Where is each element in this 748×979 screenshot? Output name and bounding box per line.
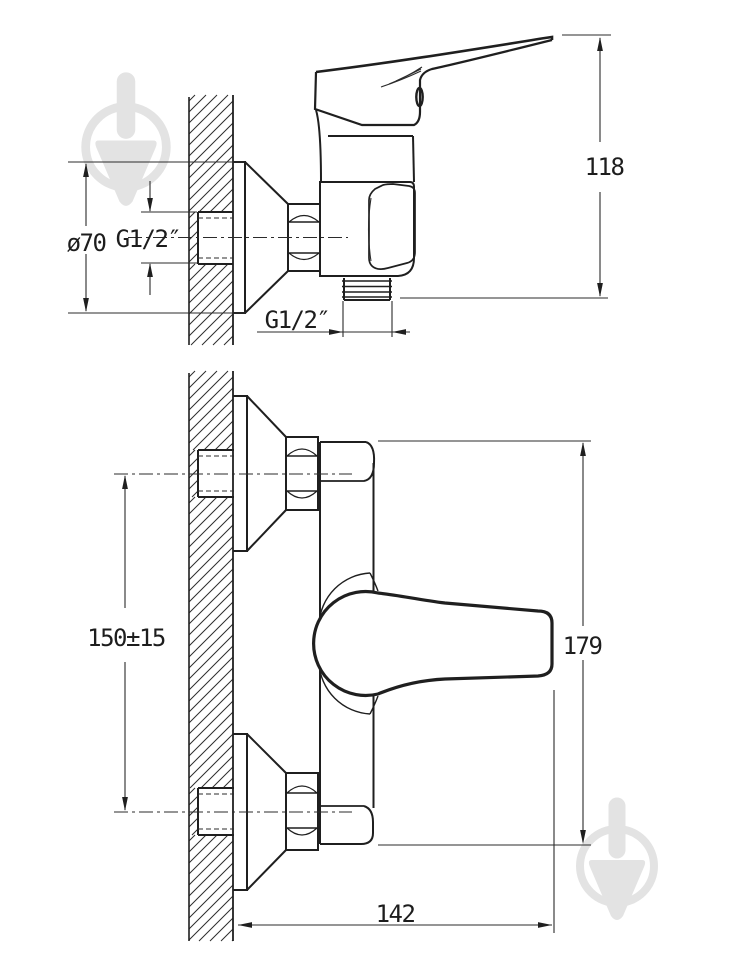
arrowhead-icon	[329, 329, 343, 335]
dimension-label-g12-wall: G1/2″	[116, 225, 181, 253]
dimension-118: 118	[400, 35, 623, 298]
handle-lever	[315, 37, 552, 125]
arrowhead-icon	[147, 198, 153, 212]
arrowhead-icon	[538, 922, 552, 928]
arrowhead-icon	[147, 263, 153, 277]
arrowhead-icon	[238, 922, 252, 928]
dimension-label-179: 179	[563, 632, 602, 660]
technical-drawing-page: ø70 G1/2″ G1/2″ 118	[0, 0, 748, 979]
trowel-in-circle-icon	[86, 82, 167, 206]
arrowhead-icon	[122, 797, 128, 811]
handle-lever	[314, 573, 552, 714]
technical-drawing: ø70 G1/2″ G1/2″ 118	[0, 0, 748, 979]
mixer-body	[316, 110, 415, 276]
dimension-150: 150±15	[87, 476, 165, 810]
arrowhead-icon	[83, 298, 89, 312]
dimension-label-g12-outlet: G1/2″	[265, 306, 330, 334]
dimension-label-dia70: ø70	[67, 229, 106, 257]
side-view: ø70 G1/2″ G1/2″ 118	[67, 35, 624, 345]
wall-hatch	[189, 95, 233, 345]
arrowhead-icon	[122, 475, 128, 489]
dimension-label-118: 118	[585, 153, 624, 181]
watermark-top-left	[86, 82, 167, 206]
watermark-bottom-right	[580, 806, 654, 920]
trowel-in-circle-icon	[580, 806, 654, 920]
arrowhead-icon	[597, 283, 603, 297]
wall-section	[189, 95, 233, 345]
front-view: 150±15 179 142	[87, 371, 601, 941]
arrowhead-icon	[580, 442, 586, 456]
dimension-label-142: 142	[376, 900, 415, 928]
outlet-thread	[342, 278, 392, 300]
arrowhead-icon	[597, 37, 603, 51]
dimension-label-150: 150±15	[87, 624, 165, 652]
arrowhead-icon	[392, 329, 406, 335]
